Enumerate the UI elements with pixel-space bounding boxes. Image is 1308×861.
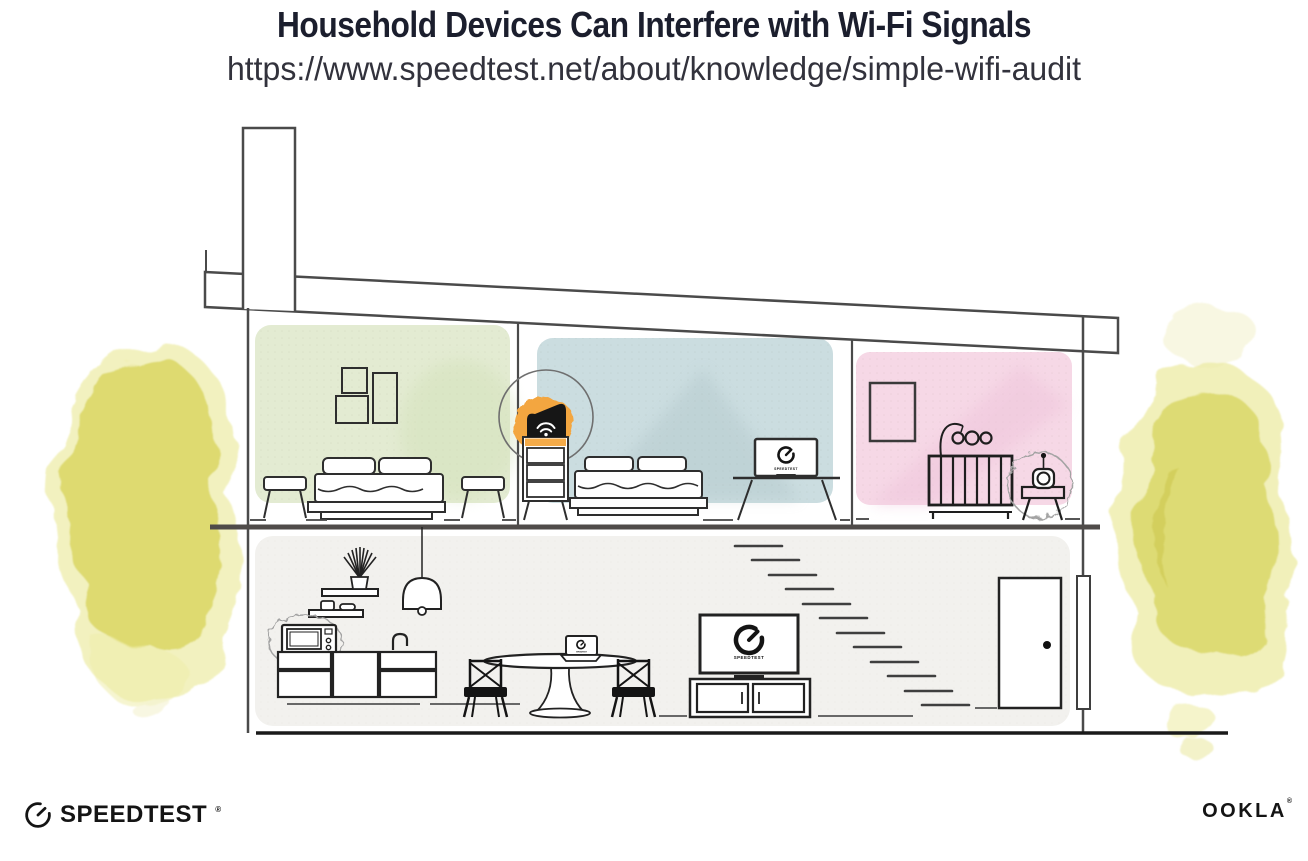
laptop-base bbox=[561, 655, 601, 661]
laptop: SPEEDTEST bbox=[561, 636, 601, 661]
ookla-wordmark: OOKLA bbox=[1202, 800, 1287, 822]
router-glow-band bbox=[525, 439, 566, 447]
monitor-stand bbox=[776, 474, 796, 478]
microwave bbox=[282, 625, 336, 653]
ookla-reg-mark: ® bbox=[1287, 798, 1292, 805]
bowl bbox=[340, 604, 355, 610]
router-shelf bbox=[523, 437, 568, 520]
table-top bbox=[484, 654, 636, 668]
media-console bbox=[690, 679, 810, 717]
laptop-screen-label: SPEEDTEST bbox=[576, 652, 588, 654]
tv-screen-label: SPEEDTEST bbox=[734, 655, 765, 660]
foliage-drop bbox=[128, 696, 172, 716]
downspout bbox=[1077, 576, 1090, 709]
table-base bbox=[530, 709, 590, 718]
speedtest-logo: SPEEDTEST® bbox=[24, 801, 221, 829]
light-bulb bbox=[418, 607, 426, 615]
infographic-page: Household Devices Can Interfere with Wi-… bbox=[0, 0, 1308, 861]
right-foliage bbox=[1114, 305, 1294, 756]
foliage-wash-top bbox=[1162, 305, 1258, 365]
speedtest-wordmark: SPEEDTEST bbox=[60, 801, 207, 829]
monitor-screen-label: SPEEDTEST bbox=[774, 467, 798, 471]
speedtest-gauge-icon bbox=[24, 801, 52, 829]
house-cutaway-illustration: SPEEDTEST bbox=[0, 0, 1308, 861]
bed bbox=[570, 457, 707, 515]
chimney bbox=[243, 128, 295, 311]
foliage-drop bbox=[1177, 738, 1213, 756]
speedtest-tv: SPEEDTEST bbox=[700, 615, 798, 679]
door-knob bbox=[1043, 641, 1051, 649]
ookla-logo: OOKLA® bbox=[1202, 800, 1292, 823]
front-door bbox=[999, 578, 1061, 708]
speedtest-reg-mark: ® bbox=[215, 805, 221, 814]
speedtest-monitor: SPEEDTEST bbox=[755, 439, 817, 478]
cup bbox=[321, 601, 334, 610]
